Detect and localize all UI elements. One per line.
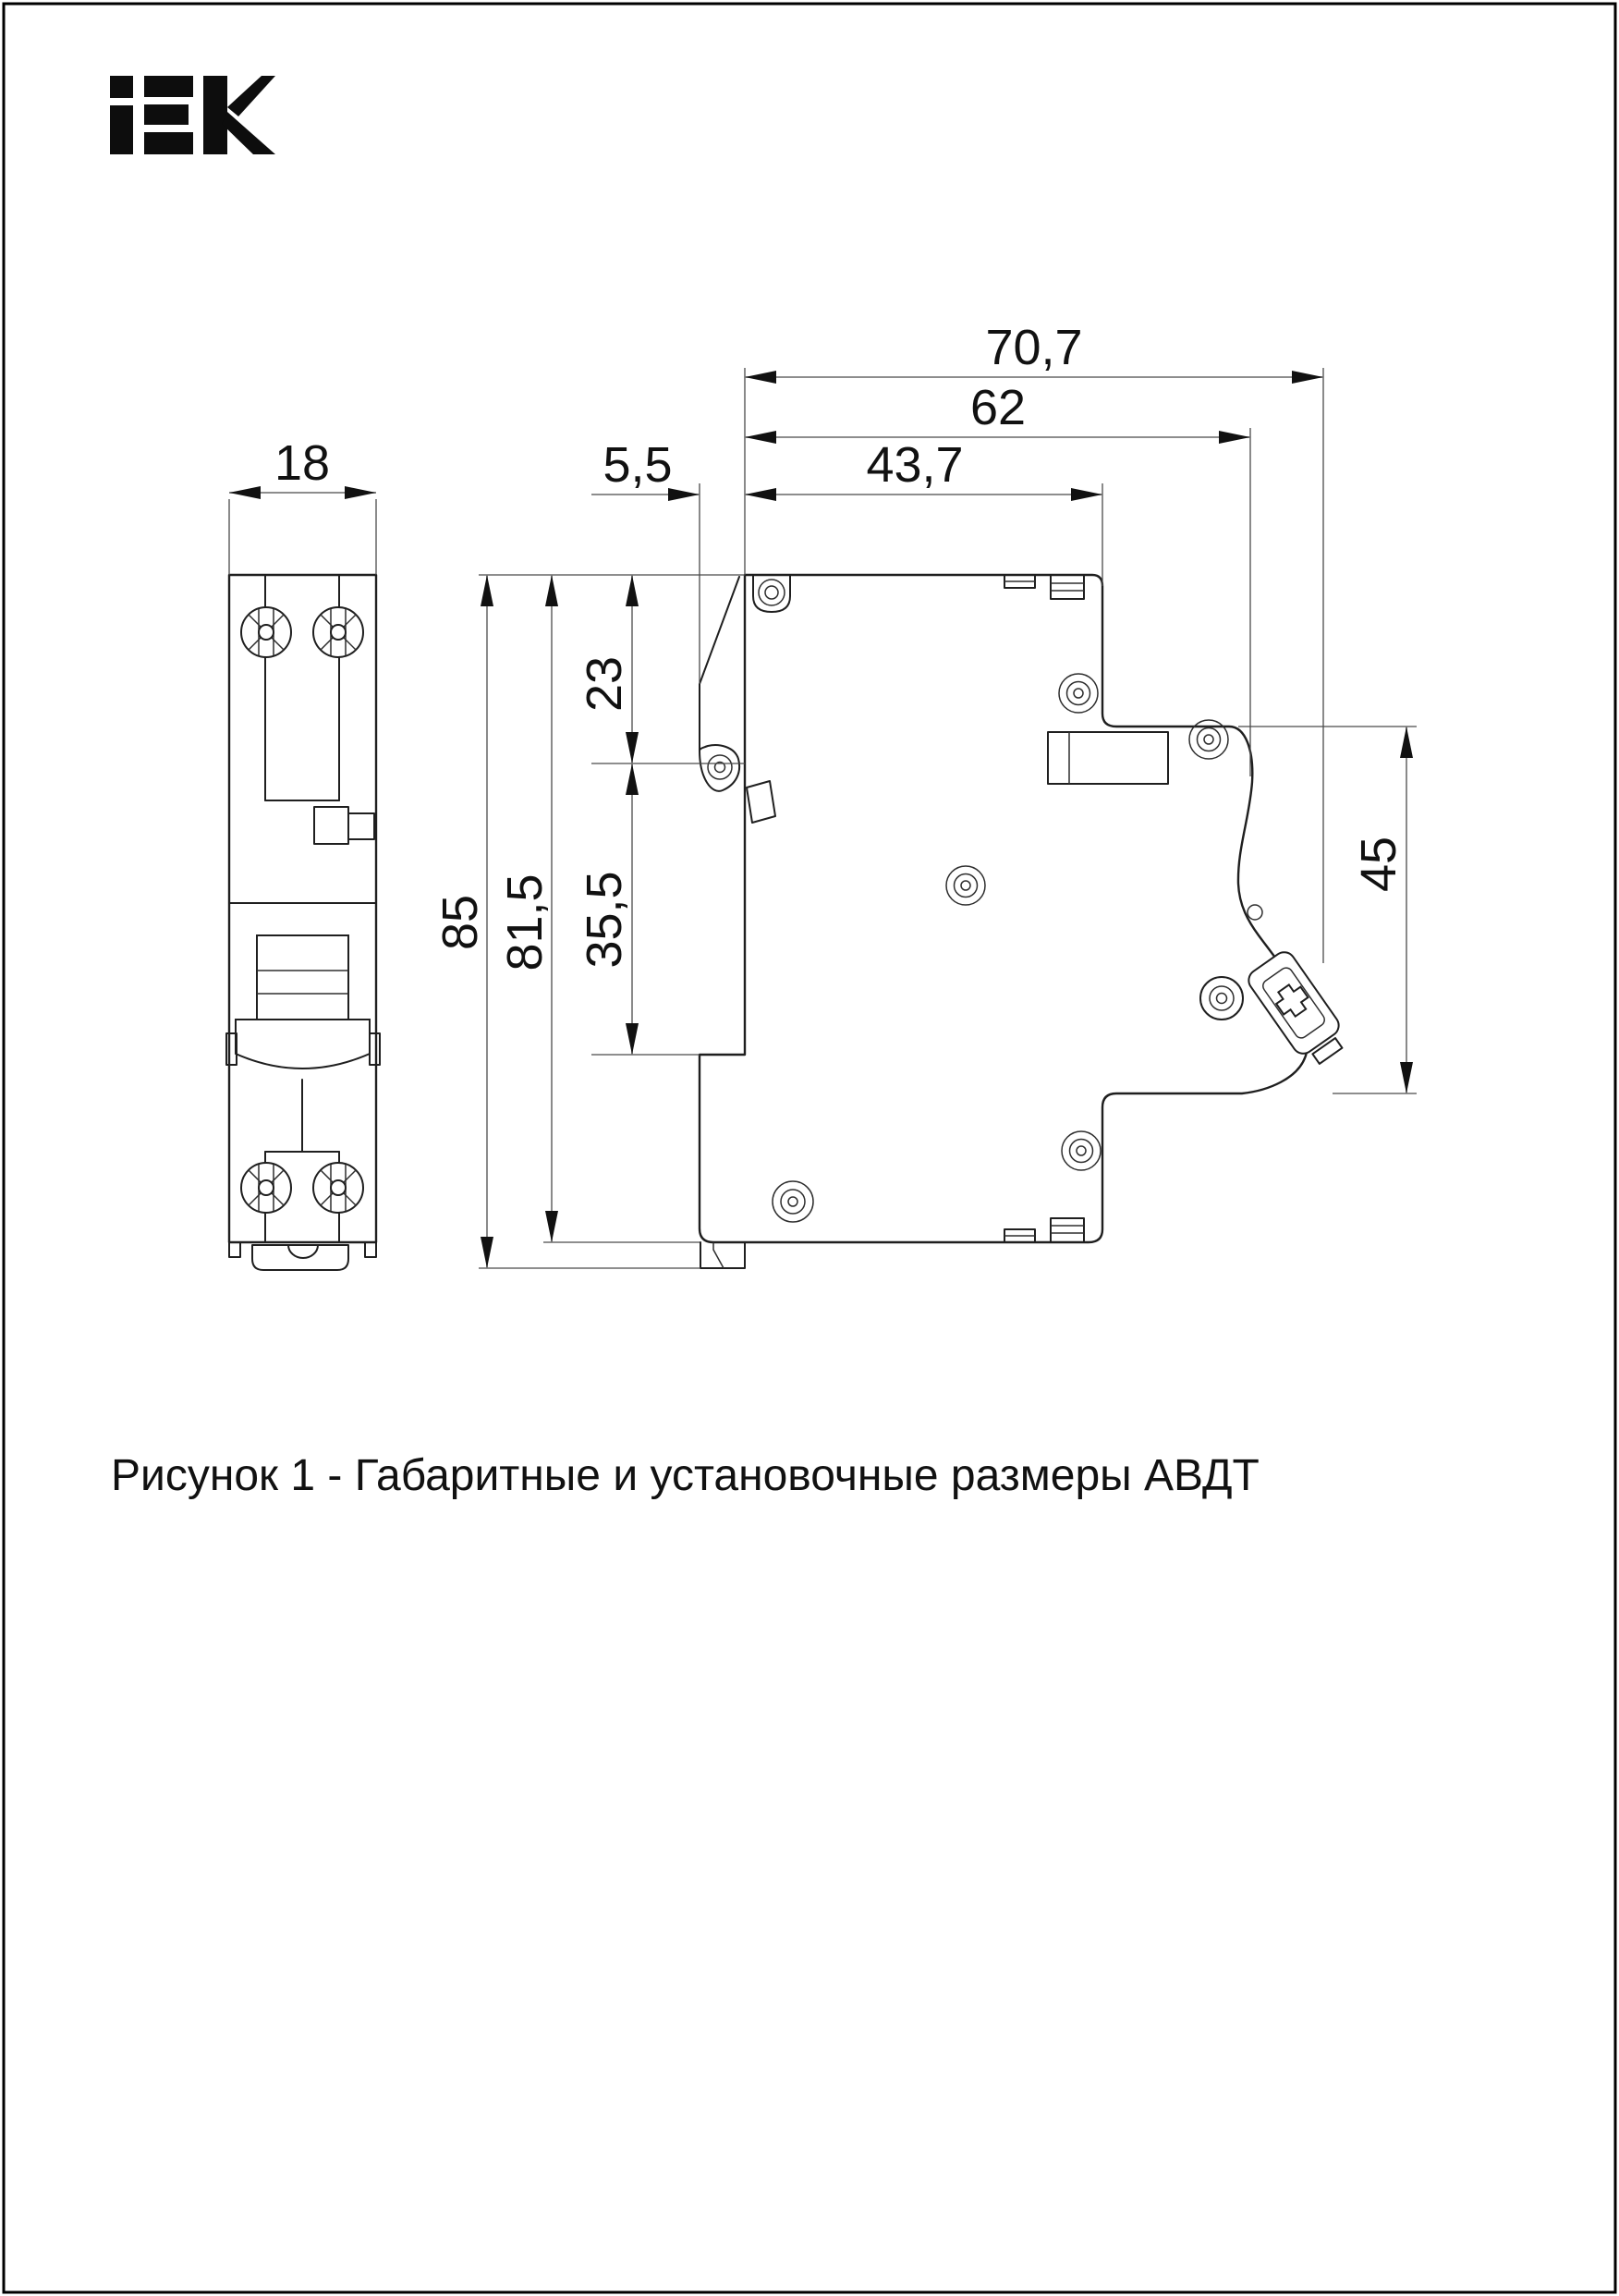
dim-label-rail-span: 35,5 [577,871,632,968]
toggle-pivot-rivet [1200,977,1243,1020]
dim-label-rail-clip-offset: 5,5 [603,437,672,493]
dim-label-module-width: 18 [274,435,330,491]
dim-label-total-depth: 70,7 [985,320,1082,375]
dim-module-width: 18 [229,435,376,499]
figure-caption: Рисунок 1 - Габаритные и установочные ра… [111,1451,1260,1500]
logo-i-dot [110,76,133,98]
logo-i-stem [110,105,133,154]
dim-label-upper-depth: 62 [970,380,1026,435]
dim-front-face-height: 45 [1351,727,1413,1093]
side-din-clip-tab [700,1242,745,1268]
terminal-screw-top-right [313,607,363,657]
iek-logo: iEK [110,76,275,154]
datasheet-page: iEK [0,0,1619,2296]
logo-e-bottom-bar [144,132,193,154]
dim-label-total-height: 85 [432,895,488,950]
dim-rail-top-offset: 23 [577,575,639,763]
dim-total-depth: 70,7 [745,320,1323,384]
dim-rail-clip-offset: 5,5 [591,437,700,501]
front-din-tab [229,1242,376,1270]
logo-e-top-bar [144,76,193,97]
logo-k-lower-arm [222,112,275,154]
front-view [226,575,380,1270]
terminal-screw-bottom-right [313,1163,363,1213]
dim-case-depth: 43,7 [745,437,1102,501]
dim-total-height: 85 [432,575,493,1268]
figure-1-drawing: iEK [0,0,1619,2296]
dim-label-front-face-height: 45 [1351,837,1406,892]
side-view [700,575,1352,1268]
side-view-body [700,575,1309,1242]
logo-e-mid-bar [144,104,189,125]
dim-label-case-height: 81,5 [497,873,553,971]
front-face-hole [1248,905,1262,920]
dim-case-height: 81,5 [497,575,558,1242]
dim-rail-span: 35,5 [577,763,639,1055]
logo-k-upper-arm [227,76,275,116]
logo-k-stem [203,76,227,154]
dim-label-rail-top-offset: 23 [577,656,632,712]
dim-label-case-depth: 43,7 [866,437,963,493]
terminal-screw-top-left [241,607,291,657]
dim-upper-depth: 62 [745,380,1250,444]
terminal-screw-bottom-left [241,1163,291,1213]
